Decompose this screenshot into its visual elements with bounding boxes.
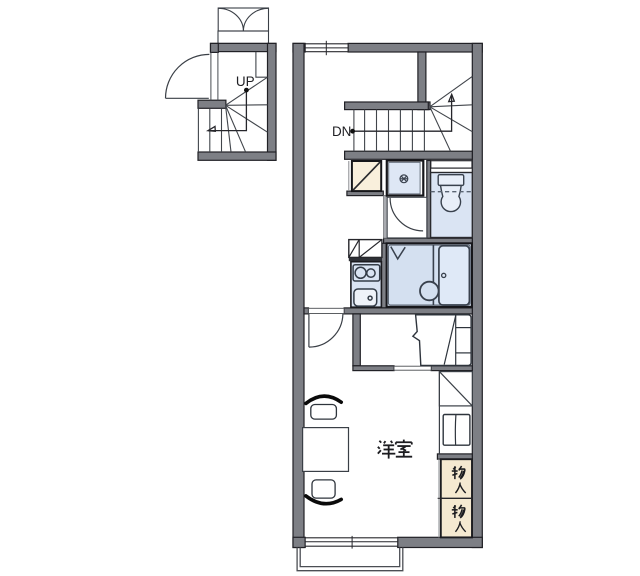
svg-text:UP: UP bbox=[236, 74, 255, 89]
svg-text:DN: DN bbox=[332, 124, 352, 139]
